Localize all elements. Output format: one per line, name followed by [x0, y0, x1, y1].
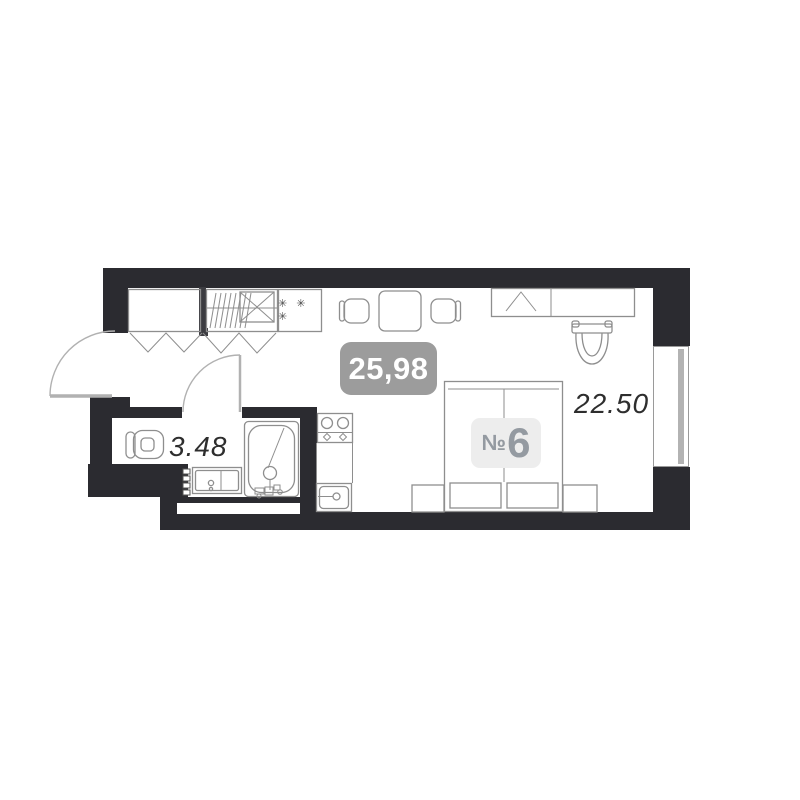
tub-drain [264, 467, 277, 480]
unit-number-prefix: № [482, 432, 507, 454]
nightstand-left [412, 485, 444, 512]
total-area-badge: 25,98 [340, 342, 437, 395]
toilet [126, 431, 164, 459]
bathroom-door [183, 355, 240, 412]
wardrobe-hanging [207, 290, 278, 332]
entry-door [50, 331, 115, 396]
furniture-layer [0, 0, 800, 800]
wardrobe-right [492, 289, 635, 317]
shelf-marker: ✳ ✳ ✳ [278, 289, 322, 331]
closet-plain [129, 290, 201, 332]
stove [318, 414, 353, 443]
floor-plan: 25,98 №6 22.50 3.48 ✳ ✳ ✳ [0, 0, 800, 800]
unit-number-badge: №6 [471, 418, 541, 468]
burner [338, 418, 349, 429]
burner [322, 418, 333, 429]
room-area-label: 22.50 [574, 388, 649, 420]
total-area-value: 25,98 [348, 351, 428, 387]
dining-table [379, 291, 421, 331]
basin-tap [208, 480, 213, 485]
pillow-right [507, 483, 558, 508]
faucet [333, 493, 340, 500]
chair-left [340, 299, 370, 323]
hanger-mark [506, 292, 536, 311]
bathtub [245, 422, 299, 499]
kitchen-sink [317, 484, 352, 512]
unit-number-value: 6 [507, 422, 530, 464]
knob [324, 434, 331, 441]
pillow-left [450, 483, 501, 508]
nightstand-right [563, 485, 597, 512]
armchair [572, 321, 612, 364]
counter [317, 443, 353, 483]
towel-radiator [183, 469, 190, 495]
chair-right [431, 299, 461, 323]
folding-doors [130, 333, 276, 353]
washbasin-cabinet [193, 468, 242, 494]
knob [340, 434, 347, 441]
basin-tap [209, 487, 212, 490]
bathroom-area-label: 3.48 [169, 431, 228, 463]
